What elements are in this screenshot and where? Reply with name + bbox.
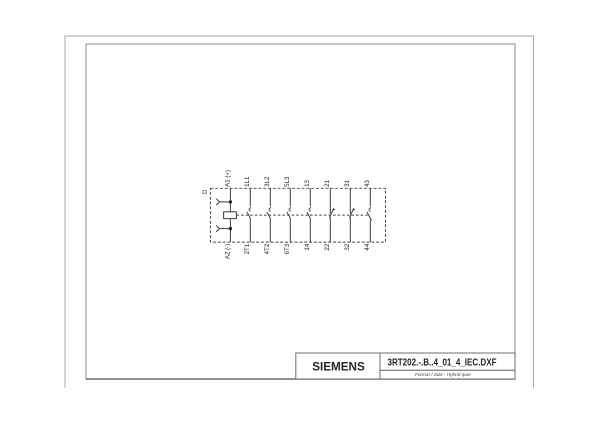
svg-text:1L1: 1L1 (244, 176, 251, 187)
svg-text:Format / Size : Hybrid quer: Format / Size : Hybrid quer (415, 372, 472, 377)
svg-text:21: 21 (324, 179, 331, 186)
svg-text:31: 31 (344, 179, 351, 186)
svg-text:22: 22 (324, 243, 331, 250)
svg-text:A2 (-): A2 (-) (224, 244, 231, 259)
svg-text:6T3: 6T3 (284, 243, 291, 254)
svg-text:D: D (202, 189, 209, 194)
svg-text:3RT202.-.B..4_01_4_IEC.DXF: 3RT202.-.B..4_01_4_IEC.DXF (388, 358, 497, 369)
svg-text:32: 32 (344, 243, 351, 250)
svg-text:2T1: 2T1 (244, 243, 251, 254)
svg-text:5L3: 5L3 (284, 176, 291, 187)
svg-text:43: 43 (364, 179, 371, 186)
svg-text:4T2: 4T2 (264, 243, 271, 254)
svg-text:SIEMENS: SIEMENS (312, 359, 365, 373)
svg-text:13: 13 (304, 179, 311, 186)
svg-text:14: 14 (304, 243, 311, 250)
svg-text:A1 (+): A1 (+) (224, 170, 231, 187)
svg-text:3L2: 3L2 (264, 176, 271, 187)
svg-text:44: 44 (364, 243, 371, 250)
